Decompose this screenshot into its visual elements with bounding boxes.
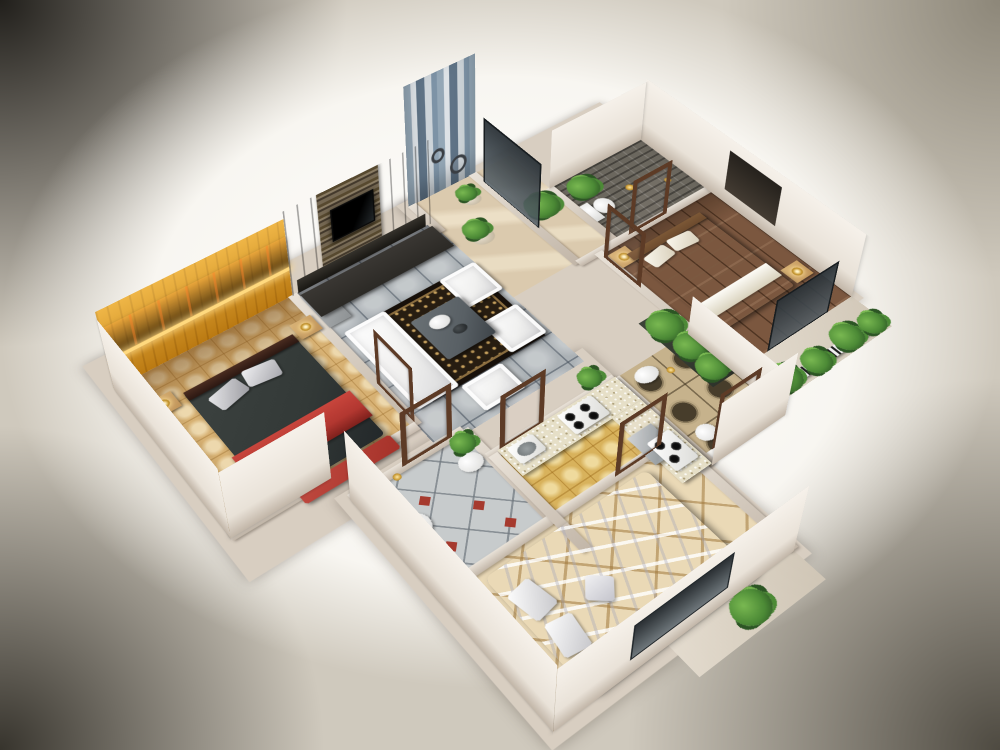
- bowl: [450, 322, 470, 336]
- round-wall-art: [431, 146, 444, 166]
- burner: [586, 410, 601, 421]
- red-tile-insert: [473, 500, 485, 510]
- table-lamp: [298, 321, 313, 332]
- red-tile-insert: [505, 517, 517, 527]
- floorplan-render-canvas: [0, 0, 1000, 750]
- cushion: [585, 575, 615, 601]
- round-wall-art: [450, 151, 467, 177]
- burner: [667, 453, 682, 465]
- burner: [669, 440, 684, 452]
- apartment-3d-model: [56, 108, 1000, 750]
- scene-perspective: [0, 0, 1000, 750]
- burner: [571, 419, 586, 430]
- jar-lamp: [789, 266, 805, 277]
- serving-tray: [425, 312, 454, 332]
- red-tile-insert: [419, 496, 431, 506]
- gold-decor: [665, 366, 677, 375]
- sink-basin: [514, 439, 540, 459]
- pillow: [506, 577, 558, 622]
- wash-basin: [630, 362, 664, 387]
